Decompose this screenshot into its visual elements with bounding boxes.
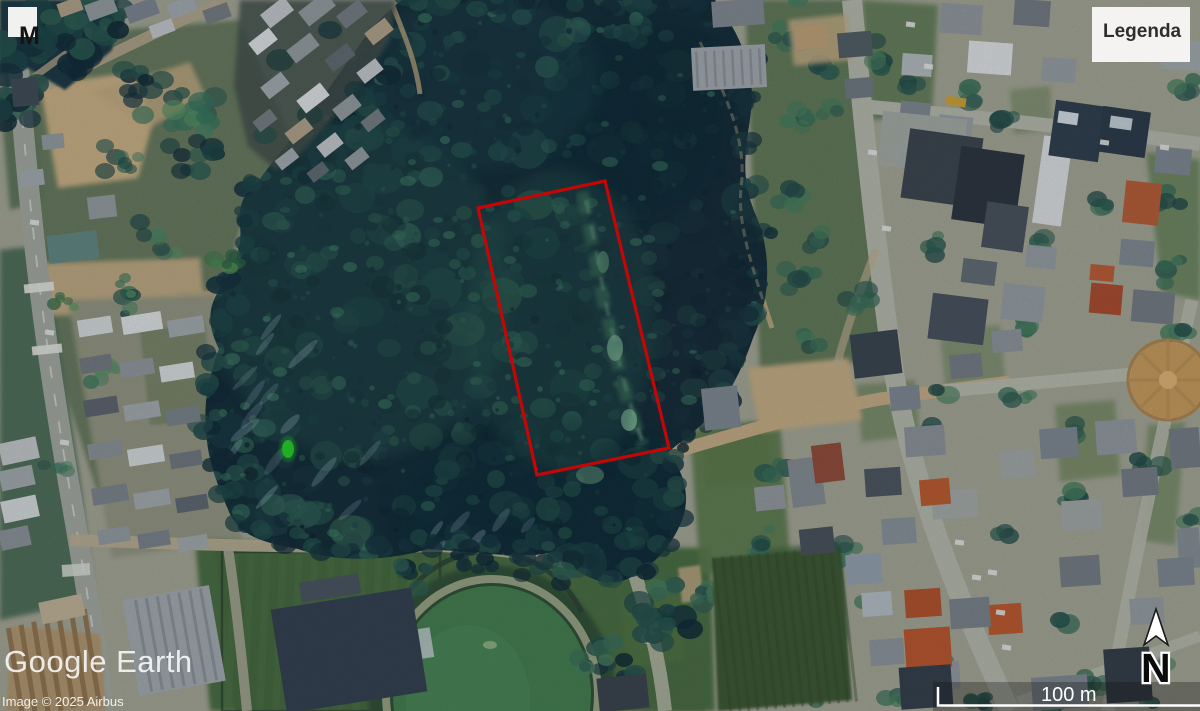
svg-text:N: N xyxy=(1141,645,1171,691)
svg-text:Image © 2025 Airbus: Image © 2025 Airbus xyxy=(2,694,124,709)
svg-text:Legenda: Legenda xyxy=(1103,21,1182,42)
svg-text:Google Earth: Google Earth xyxy=(4,644,193,679)
svg-text:M: M xyxy=(19,22,40,50)
svg-text:100 m: 100 m xyxy=(1041,684,1097,706)
